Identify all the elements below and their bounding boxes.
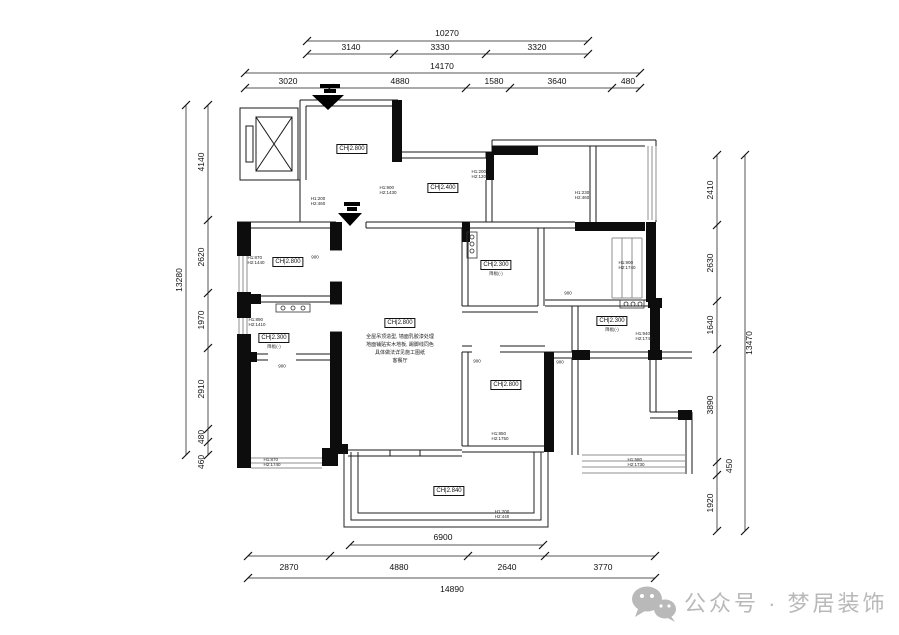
dim-right-5: 1920	[705, 494, 715, 513]
elevator-icon	[240, 108, 298, 180]
living-room-notes: 全屋吊顶造型, 墙面乳胶漆处理 地面铺贴实木地板, 踢脚线同色 具体做法详见施工…	[340, 333, 460, 365]
dim-left-total: 13280	[174, 268, 184, 292]
dim-bottom-3: 3770	[594, 562, 613, 572]
window-height-annotation: H1:200 H2:440	[495, 509, 510, 519]
room-sub-bedroom-left-lower: 降板(-)	[267, 344, 281, 350]
dimension-ticks	[182, 37, 749, 582]
dim-left-2: 1970	[196, 311, 206, 330]
door-width-label: 900	[556, 360, 564, 365]
dim-top-outer-3: 3640	[548, 76, 567, 86]
dim-right-total: 13470	[744, 331, 754, 355]
window-height-annotation: H1:580 H2:1730	[627, 457, 644, 467]
dim-left-1: 2620	[196, 248, 206, 267]
room-label-bedroom-right: CH|2.300	[596, 316, 627, 326]
walls-black	[237, 100, 692, 468]
dim-bottom-1: 4880	[390, 562, 409, 572]
door-width-label: 900	[278, 364, 286, 369]
window-height-annotation: H1:850 H2:1750	[491, 431, 508, 441]
dim-right-2: 1640	[705, 316, 715, 335]
watermark-text: 公众号 · 梦居装饰	[684, 586, 888, 618]
dim-top-inner-2: 3320	[528, 42, 547, 52]
dim-top-inner-1: 3330	[431, 42, 450, 52]
dim-bottom-2: 2640	[498, 562, 517, 572]
room-label-study-middle: CH|2.300	[480, 260, 511, 270]
room-label-entry: CH|2.800	[336, 144, 367, 154]
dim-top-outer-1: 4880	[391, 76, 410, 86]
window-height-annotation: H1:200 H2:460	[311, 196, 326, 206]
walls-thin	[237, 100, 692, 474]
dim-bottom-total: 14890	[440, 584, 464, 594]
room-sub-study-middle: 降板(-)	[489, 271, 503, 277]
dim-left-4: 480	[196, 430, 206, 444]
dim-right-1: 2630	[705, 254, 715, 273]
dim-right-0: 2410	[705, 181, 715, 200]
dimension-lines	[186, 41, 745, 578]
window-height-annotation: H1:890 H2:1410	[248, 317, 265, 327]
dim-top-outer-4: 480	[621, 76, 635, 86]
window-height-annotation: H1:230 H2:460	[575, 190, 590, 200]
wechat-icon	[627, 584, 679, 624]
floorplan-canvas: 10270 3140 3330 3320 14170 3020 4880 158…	[0, 0, 899, 635]
dim-top-outer-2: 1580	[485, 76, 504, 86]
room-label-kitchen: CH|2.400	[427, 183, 458, 193]
room-label-bedroom-left-middle: CH|2.800	[272, 257, 303, 267]
dim-bottom-balcony: 6900	[434, 532, 453, 542]
room-label-living: CH|2.800	[384, 318, 415, 328]
dim-left-5: 460	[196, 455, 206, 469]
window-height-annotation: H1:900 H2:1430	[379, 185, 396, 195]
dim-left-3: 2910	[196, 380, 206, 399]
dim-bottom-0: 2870	[280, 562, 299, 572]
window-height-annotation: H1:870 H2:1440	[247, 255, 264, 265]
dim-top-outer-0: 3020	[279, 76, 298, 86]
window-height-annotation: H1:870 H2:1740	[263, 457, 280, 467]
dim-left-0: 4140	[196, 153, 206, 172]
room-label-bedroom-bottom-middle: CH|2.800	[490, 380, 521, 390]
door-width-label: 900	[311, 255, 319, 260]
door-width-label: 900	[473, 359, 481, 364]
window-height-annotation: H1:200 H2:1200	[471, 169, 488, 179]
window-height-annotation: H1:940 H2:1740	[635, 331, 652, 341]
dim-top-inner-total: 10270	[435, 28, 459, 38]
dim-right-3: 3890	[705, 396, 715, 415]
window-height-annotation: H1:900 H2:1740	[618, 260, 635, 270]
room-sub-bedroom-right: 降板(-)	[605, 327, 619, 333]
room-label-bedroom-left-lower: CH|2.300	[258, 333, 289, 343]
dim-top-outer-total: 14170	[430, 61, 454, 71]
door-width-label: 900	[564, 291, 572, 296]
dim-top-inner-0: 3140	[342, 42, 361, 52]
room-label-balcony: CH|2.840	[433, 486, 464, 496]
dim-right-4: 450	[724, 459, 734, 473]
